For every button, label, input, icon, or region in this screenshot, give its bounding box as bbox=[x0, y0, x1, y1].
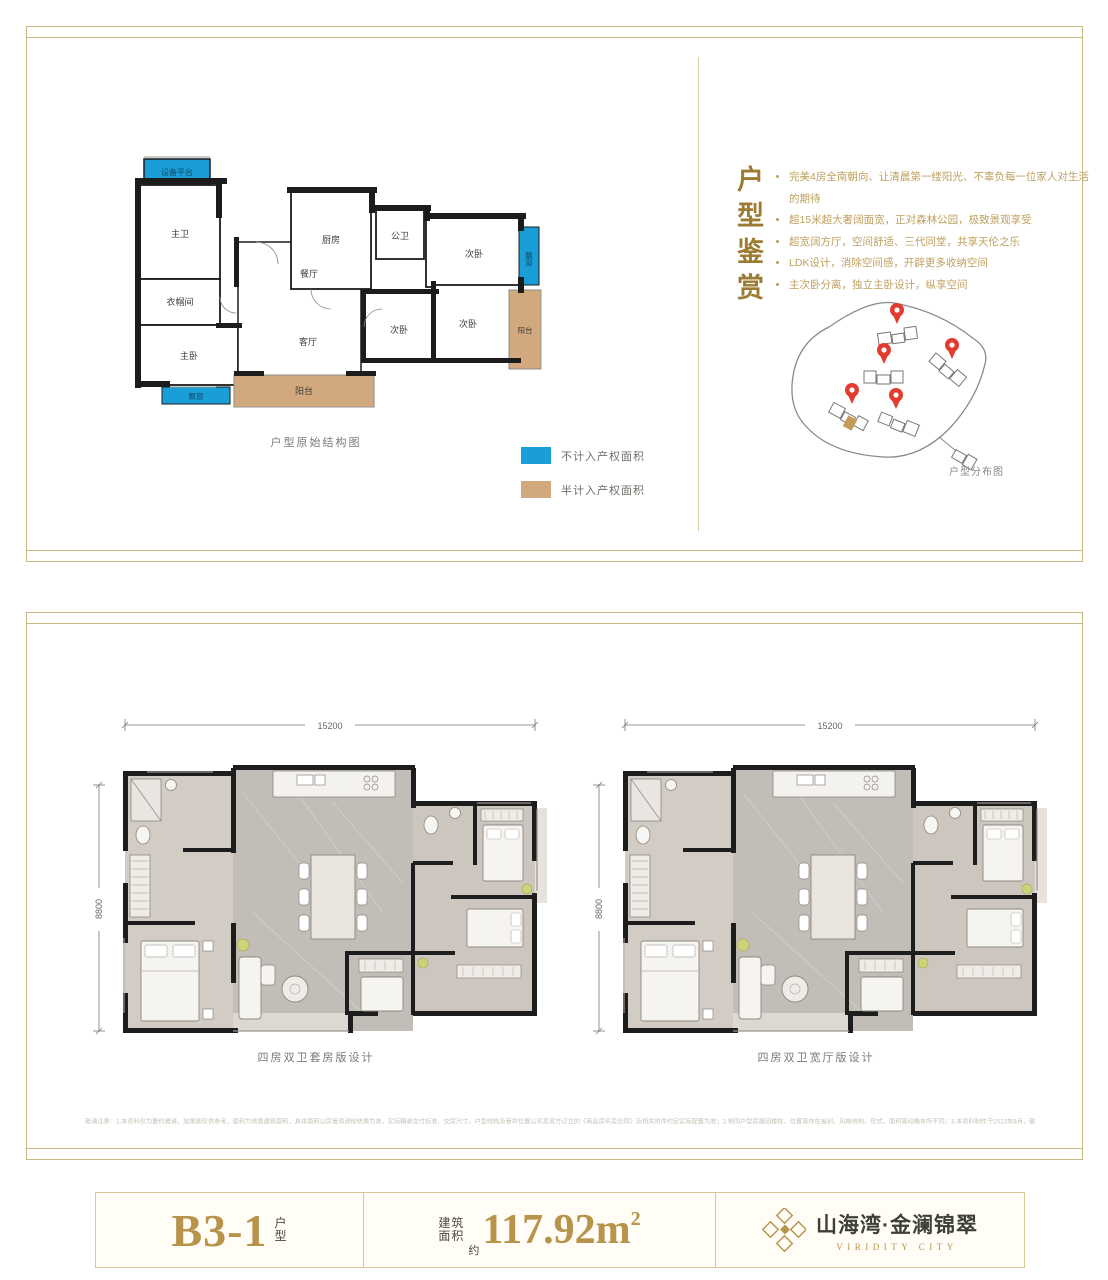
bottom-panel: 四房双卫套房版设计 四房双卫宽厅版设计 敬请注意：1.本资料仅为要约邀请，效果图… bbox=[26, 612, 1083, 1160]
area-label: 面积 bbox=[438, 1230, 464, 1243]
svg-text:阳台: 阳台 bbox=[295, 385, 313, 396]
area-approx: 约 bbox=[468, 1242, 479, 1258]
brand-emblem-icon bbox=[762, 1208, 806, 1252]
legend-swatch-blue bbox=[521, 447, 551, 464]
appreciation-bullets: 完美4房全南朝向、让清晨第一缕阳光、不辜负每一位家人对生活的期待 超15米超大奢… bbox=[775, 167, 1089, 296]
disclaimer-text: 敬请注意：1.本资料仅为要约邀请，效果图仅供参考，面积为预售建筑面积，具体面积以… bbox=[85, 1116, 1035, 1125]
footer-band: B3-1 户 型 建筑 面积 约 117.92m2 山海湾·金澜锦翠 VIRID… bbox=[95, 1192, 1025, 1268]
bedroom4-room bbox=[434, 285, 521, 361]
legend-label: 半计入产权面积 bbox=[561, 482, 645, 498]
legend-label: 不计入产权面积 bbox=[561, 448, 645, 464]
svg-text:主卧: 主卧 bbox=[180, 350, 198, 361]
svg-text:次卧: 次卧 bbox=[390, 324, 408, 335]
svg-text:设备平台: 设备平台 bbox=[161, 167, 193, 177]
brand-name-en: VIRIDITY CITY bbox=[816, 1242, 978, 1252]
svg-text:主卫: 主卫 bbox=[171, 228, 189, 239]
detailed-plan-widehall bbox=[583, 713, 1049, 1043]
bullet-item: LDK设计，消除空间感，开辟更多收纳空间 bbox=[789, 253, 1089, 275]
legend-swatch-tan bbox=[521, 481, 551, 498]
bullet-item: 超15米超大奢阔面宽，正对森林公园，极致景观享受 bbox=[789, 210, 1089, 232]
svg-text:衣帽间: 衣帽间 bbox=[166, 296, 193, 307]
legend: 不计入产权面积 半计入产权面积 bbox=[521, 447, 645, 515]
plan-caption-suite: 四房双卫套房版设计 bbox=[83, 1049, 549, 1065]
svg-text:飘窗: 飘窗 bbox=[189, 391, 204, 401]
panel-divider bbox=[698, 57, 699, 531]
legend-item-excluded: 不计入产权面积 bbox=[521, 447, 645, 464]
appreciation-title: 户型鉴赏 bbox=[729, 165, 768, 345]
structural-floorplan: 设备平台 主卫 衣帽间 主卧 厨房 餐厅 客厅 公卫 次卧 次卧 次卧 阳台 阳… bbox=[106, 147, 576, 447]
site-plan-caption: 户型分布图 bbox=[949, 465, 1004, 478]
footer-area-cell: 建筑 面积 约 117.92m2 bbox=[364, 1193, 716, 1267]
svg-text:次卧: 次卧 bbox=[459, 318, 477, 329]
top-panel: 设备平台 主卫 衣帽间 主卧 厨房 餐厅 客厅 公卫 次卧 次卧 次卧 阳台 阳… bbox=[26, 26, 1083, 562]
bullet-item: 超宽阔方厅，空间舒适、三代同堂，共享天伦之乐 bbox=[789, 232, 1089, 254]
footer-brand-cell: 山海湾·金澜锦翠 VIRIDITY CITY bbox=[716, 1193, 1024, 1267]
svg-text:次卧: 次卧 bbox=[465, 248, 483, 259]
svg-text:厨房: 厨房 bbox=[322, 234, 340, 245]
area-value: 117.92m2 bbox=[482, 1206, 640, 1254]
svg-text:阳台: 阳台 bbox=[518, 325, 533, 335]
svg-text:公卫: 公卫 bbox=[391, 231, 409, 241]
svg-text:客厅: 客厅 bbox=[299, 336, 317, 347]
site-plan-map: 户型分布图 bbox=[789, 289, 1039, 484]
footer-unit-cell: B3-1 户 型 bbox=[96, 1193, 364, 1267]
svg-text:餐厅: 餐厅 bbox=[300, 268, 318, 279]
structural-plan-caption: 户型原始结构图 bbox=[166, 434, 466, 450]
unit-label: 型 bbox=[274, 1230, 287, 1243]
plan-caption-widehall: 四房双卫宽厅版设计 bbox=[583, 1049, 1049, 1065]
svg-text:飘窗: 飘窗 bbox=[524, 251, 533, 267]
unit-code: B3-1 bbox=[171, 1204, 267, 1257]
brand-name-cn: 山海湾·金澜锦翠 bbox=[816, 1209, 978, 1239]
bullet-item: 完美4房全南朝向、让清晨第一缕阳光、不辜负每一位家人对生活的期待 bbox=[789, 167, 1089, 210]
detailed-plan-suite bbox=[83, 713, 549, 1043]
legend-item-half: 半计入产权面积 bbox=[521, 481, 645, 498]
